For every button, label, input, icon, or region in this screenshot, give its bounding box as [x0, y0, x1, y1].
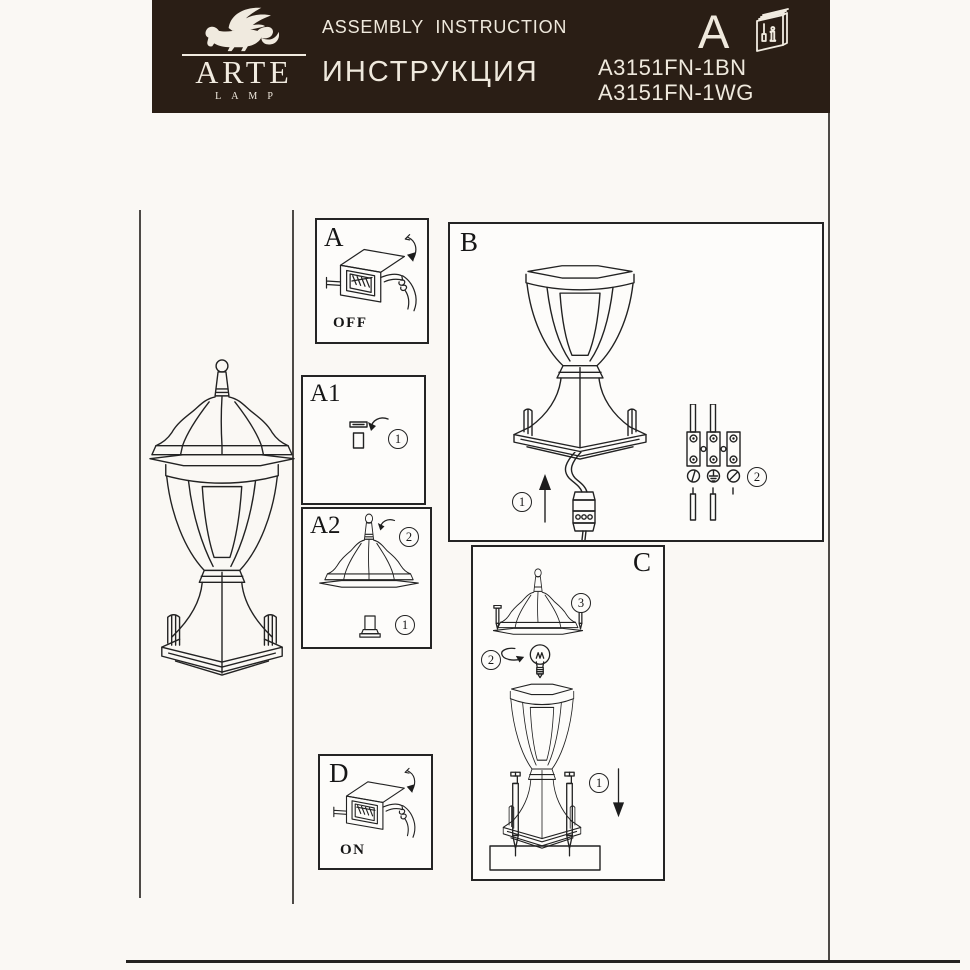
page-border-left	[139, 210, 141, 898]
brand-subname: LAMP	[176, 91, 312, 102]
dome-cover-illustration	[317, 512, 421, 588]
instruction-sheet: ARTE LAMP ASSEMBLY INSTRUCTION ИНСТРУКЦИ…	[0, 0, 970, 970]
bulb-icon	[528, 643, 552, 679]
wire-earth	[711, 404, 716, 432]
step-badge: 1	[395, 615, 415, 635]
rotate-arrow-icon	[499, 647, 527, 663]
assembly-instruction-title: ASSEMBLY INSTRUCTION	[322, 17, 567, 38]
rotate-arrow-icon	[377, 518, 397, 533]
bolt-screw-icon	[359, 614, 381, 640]
wire-neutral	[691, 404, 696, 432]
book-i-letter: i	[770, 24, 776, 46]
instruction-ru-title: ИНСТРУКЦИЯ	[322, 56, 539, 89]
step-badge: 2	[747, 467, 767, 487]
arte-lamp-logo: ARTE LAMP	[176, 3, 312, 102]
panel-d: D ON	[318, 754, 433, 870]
page-letter: A	[698, 4, 729, 59]
panel-c-label: C	[633, 549, 651, 576]
wiring-terminal-illustration	[683, 404, 769, 524]
small-screw-icon	[493, 605, 502, 631]
step-badge: 1	[388, 429, 408, 449]
panel-a1-label: A1	[310, 381, 341, 406]
brand-name: ARTE	[176, 56, 312, 90]
winged-lion-icon	[195, 3, 293, 53]
model-number: A3151FN-1WG	[598, 81, 754, 106]
rotate-arrow-icon	[368, 416, 390, 434]
off-label: OFF	[333, 315, 368, 332]
model-number: A3151FN-1BN	[598, 56, 754, 81]
ground-base-illustration	[489, 845, 601, 871]
switch-on-illustration	[324, 766, 426, 842]
step-badge: 2	[399, 527, 419, 547]
manual-book-icon: i	[748, 8, 796, 54]
model-numbers: A3151FN-1BN A3151FN-1WG	[598, 56, 754, 105]
step-badge: 3	[571, 593, 591, 613]
panel-b: B	[448, 222, 824, 542]
panel-a2: A2 2 1	[301, 507, 432, 649]
panel-a: A OFF	[315, 218, 429, 344]
lamp-body-illustration	[500, 262, 660, 460]
down-arrow-icon	[612, 767, 625, 821]
step-badge: 1	[589, 773, 609, 793]
cable-connector-illustration	[555, 452, 615, 540]
header: ARTE LAMP ASSEMBLY INSTRUCTION ИНСТРУКЦИ…	[152, 0, 830, 113]
step-badge: 2	[481, 650, 501, 670]
on-label: ON	[340, 842, 366, 859]
up-arrow-icon	[538, 474, 552, 524]
page-border-right	[828, 113, 830, 962]
complete-lamp-illustration	[148, 356, 296, 700]
page-border-bottom	[126, 960, 960, 963]
panel-a1: A1 1	[301, 375, 426, 505]
switch-off-illustration	[321, 232, 423, 316]
panel-c: C 3 2	[471, 545, 665, 881]
panel-b-label: B	[460, 229, 478, 256]
step-badge: 1	[512, 492, 532, 512]
wire-live	[731, 404, 736, 432]
